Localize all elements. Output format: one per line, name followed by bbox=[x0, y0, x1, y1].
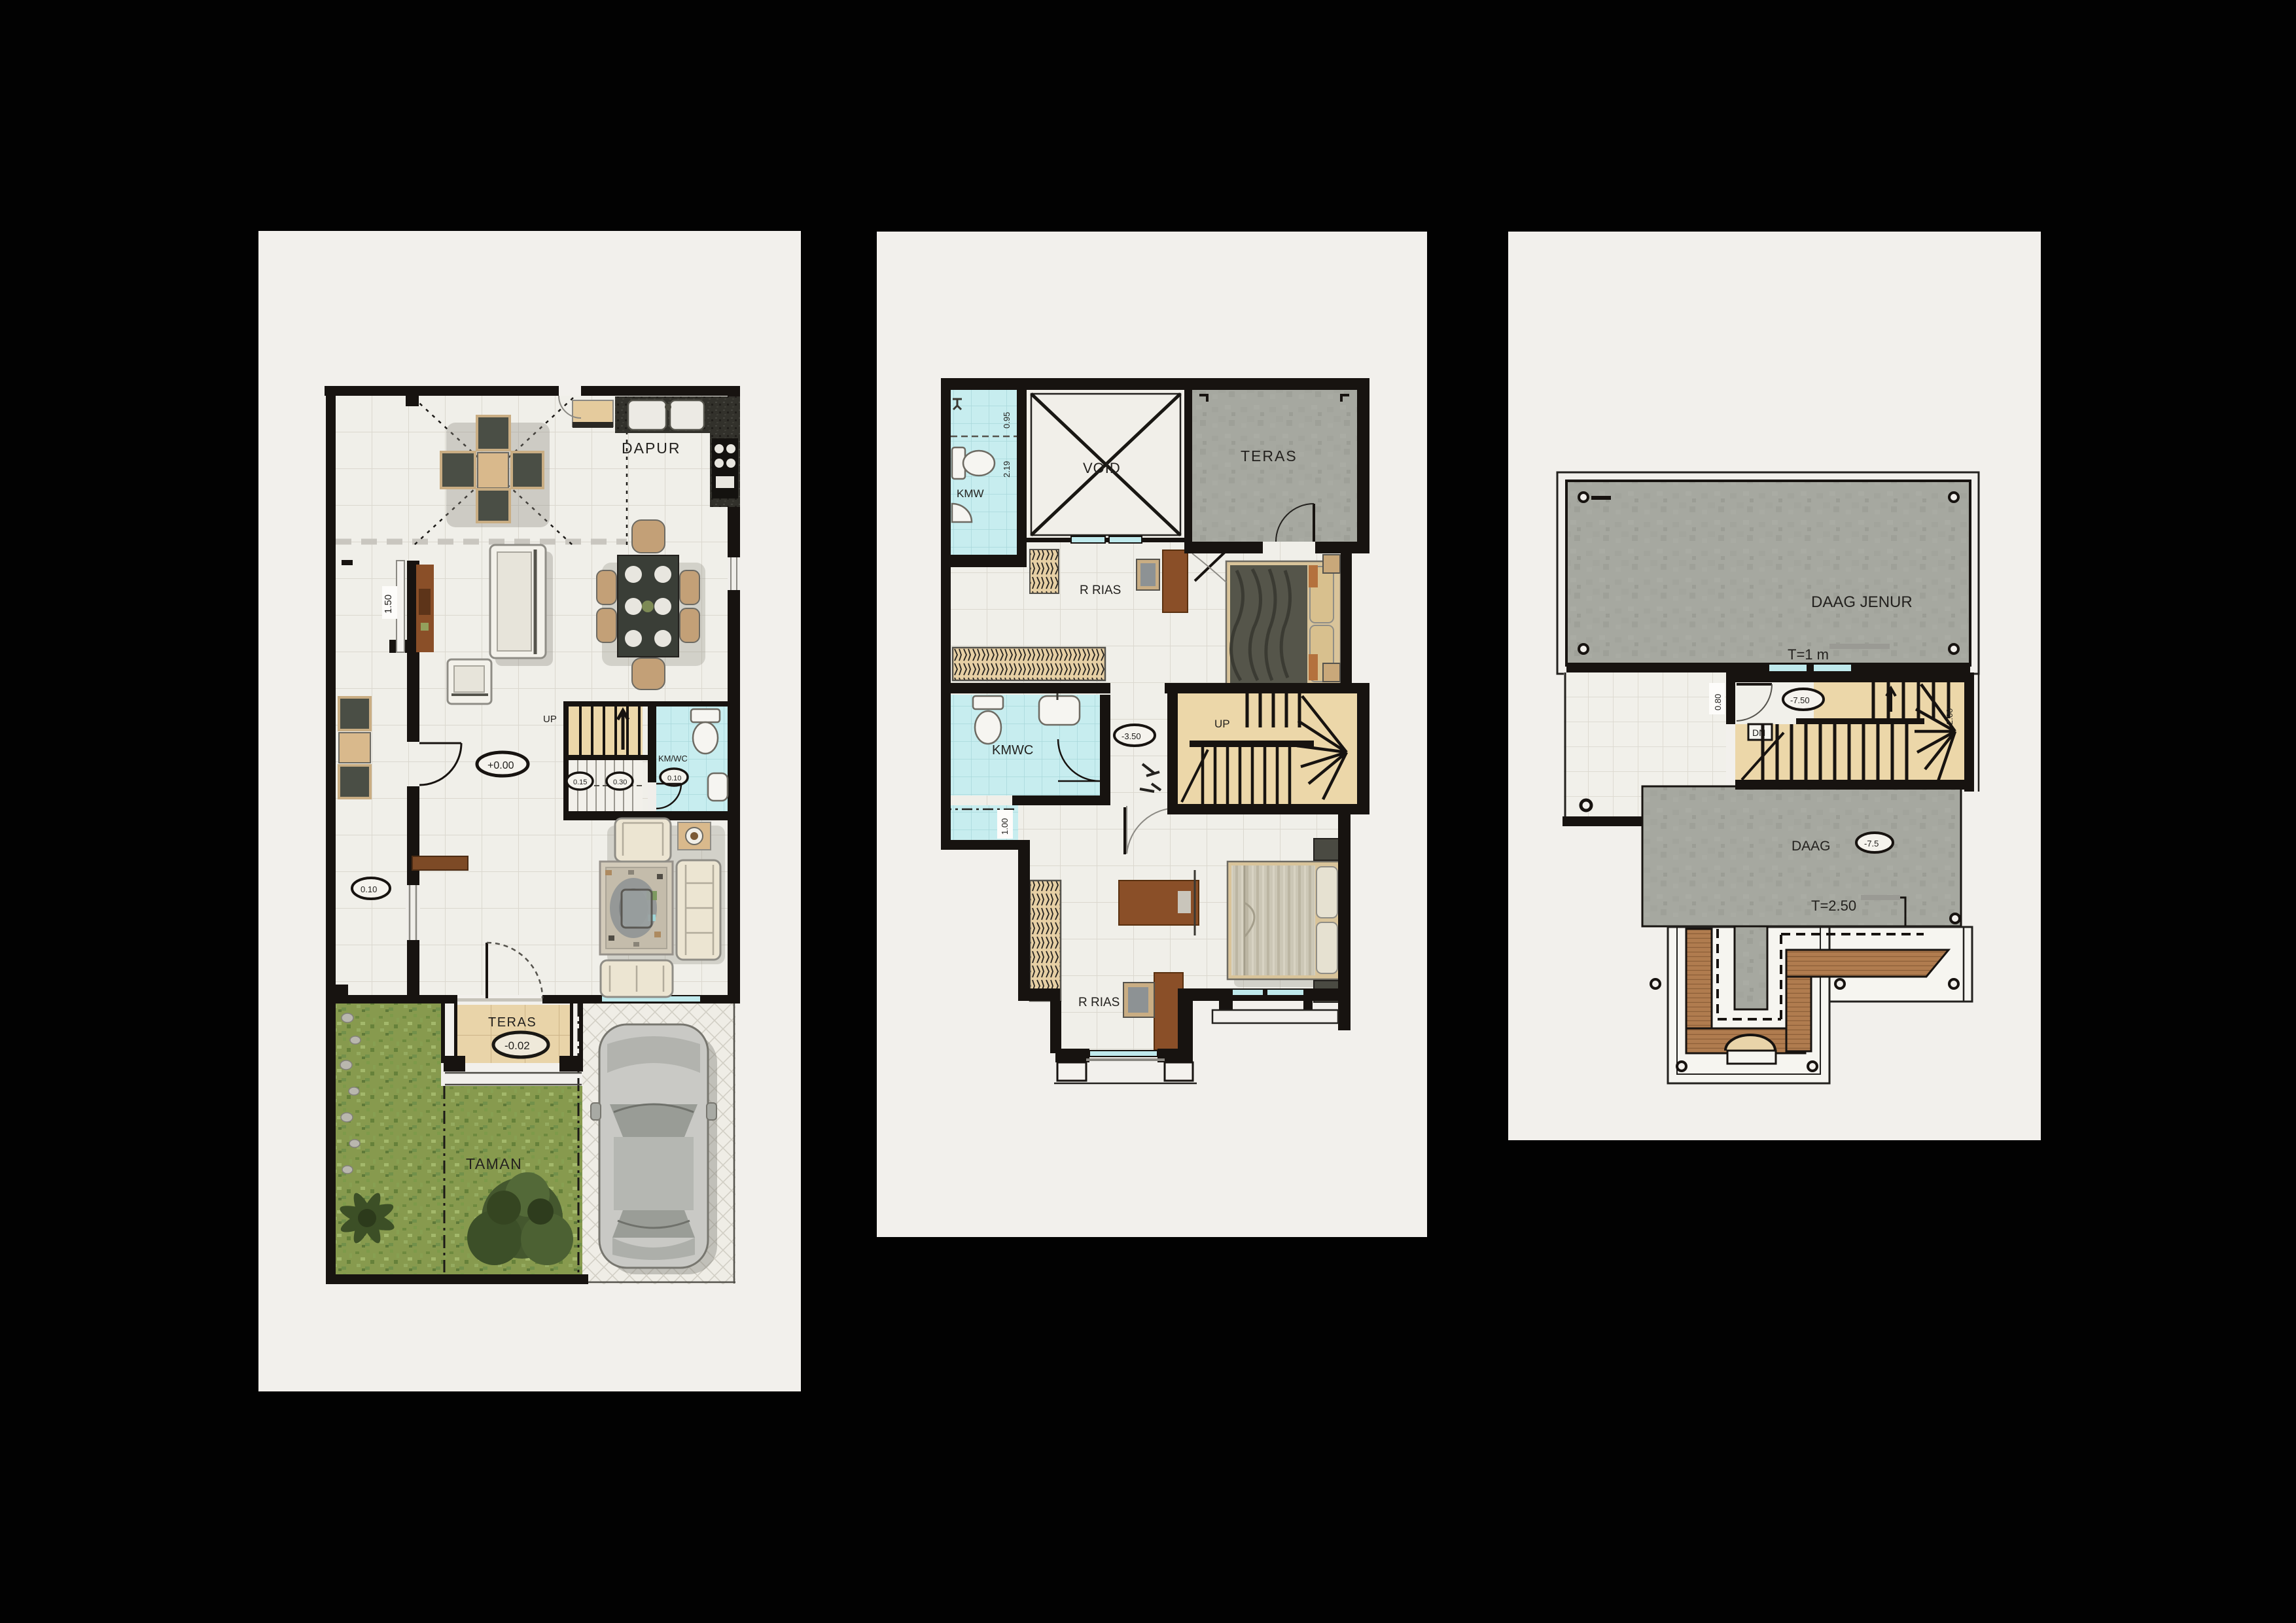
svg-text:TERAS: TERAS bbox=[488, 1015, 537, 1030]
svg-text:0.95: 0.95 bbox=[1002, 412, 1012, 428]
svg-text:TAMAN: TAMAN bbox=[466, 1155, 522, 1172]
svg-text:DAPUR: DAPUR bbox=[622, 440, 681, 457]
svg-text:UP: UP bbox=[1214, 718, 1230, 730]
svg-text:KM/WC: KM/WC bbox=[658, 754, 688, 763]
svg-text:-0.02: -0.02 bbox=[504, 1039, 530, 1052]
svg-text:DAAG: DAAG bbox=[1792, 839, 1831, 854]
svg-text:-3.50: -3.50 bbox=[1122, 731, 1141, 741]
svg-text:0.15: 0.15 bbox=[573, 778, 587, 786]
svg-text:0.30: 0.30 bbox=[613, 778, 627, 786]
svg-text:0.80: 0.80 bbox=[1713, 694, 1723, 710]
svg-text:2.00: 2.00 bbox=[1945, 708, 1954, 725]
svg-text:1.50: 1.50 bbox=[383, 595, 394, 614]
svg-text:1.00: 1.00 bbox=[1000, 818, 1010, 835]
svg-text:TERAS: TERAS bbox=[1241, 447, 1298, 464]
svg-text:DAAG JENUR: DAAG JENUR bbox=[1811, 593, 1913, 611]
svg-text:T=1 m: T=1 m bbox=[1788, 646, 1829, 663]
svg-text:+0.00: +0.00 bbox=[487, 760, 514, 771]
svg-text:T=2.50: T=2.50 bbox=[1811, 898, 1856, 914]
svg-text:R RIAS: R RIAS bbox=[1078, 996, 1120, 1009]
svg-text:VOID: VOID bbox=[1083, 460, 1121, 476]
svg-text:-7.50: -7.50 bbox=[1790, 695, 1810, 705]
svg-text:UP: UP bbox=[543, 714, 557, 725]
svg-text:0.10: 0.10 bbox=[361, 884, 377, 894]
svg-text:-7.5: -7.5 bbox=[1864, 839, 1879, 848]
svg-text:R RIAS: R RIAS bbox=[1080, 584, 1121, 597]
svg-text:KMW: KMW bbox=[957, 487, 984, 500]
svg-text:0.10: 0.10 bbox=[667, 775, 681, 782]
svg-text:2.19: 2.19 bbox=[1002, 461, 1012, 478]
svg-text:KMWC: KMWC bbox=[992, 743, 1033, 758]
